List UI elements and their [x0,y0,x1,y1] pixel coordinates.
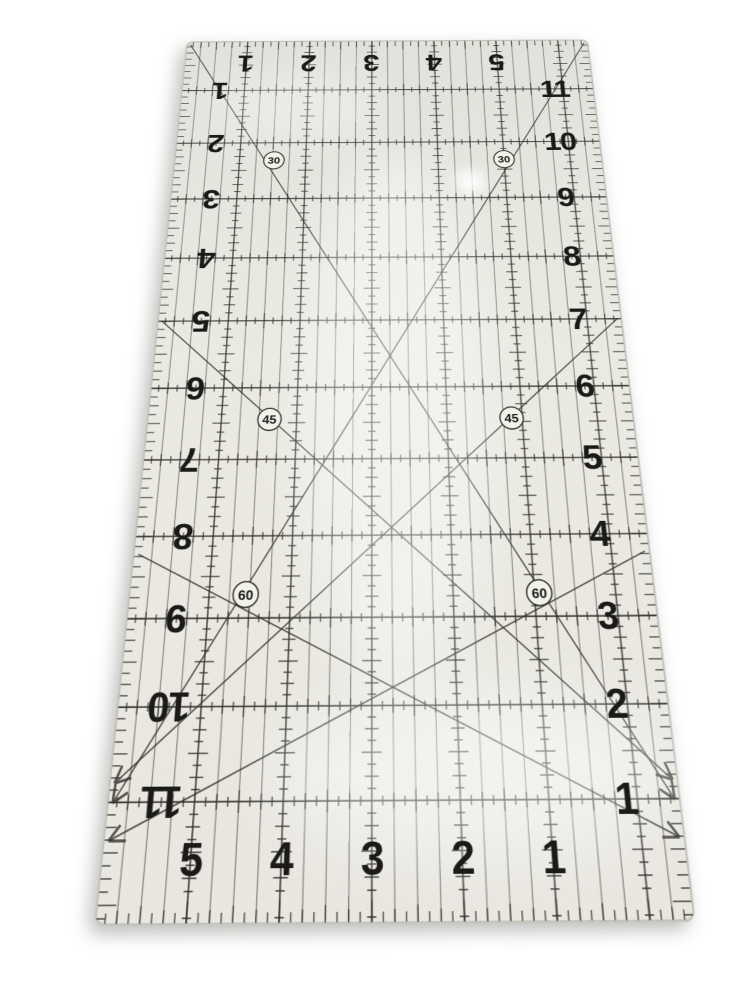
ruler-number: 3 [363,50,379,76]
ruler-number: 4 [425,49,443,75]
svg-text:45: 45 [262,413,277,426]
ruler-number: 10 [543,127,578,155]
ruler-number: 11 [138,776,184,828]
ruler-number: 2 [300,50,317,76]
ruler-number: 4 [269,832,295,886]
svg-text:60: 60 [531,586,547,602]
ruler-shadow: 3030454560601234554321123456789101111109… [0,0,750,1000]
ruler-number: 10 [146,683,192,731]
ruler-number: 11 [539,76,572,103]
photo-scene: 3030454560601234554321123456789101111109… [0,0,750,1000]
svg-text:30: 30 [267,156,280,166]
quilting-ruler: 3030454560601234554321123456789101111109… [93,39,697,927]
ruler-number: 3 [361,832,384,886]
angle-label-30: 30 [493,151,515,168]
angle-label-45: 45 [257,408,281,430]
svg-text:30: 30 [498,154,511,164]
ruler-number: 5 [488,49,506,75]
svg-text:60: 60 [237,587,253,603]
ruler-face: 3030454560601234554321123456789101111109… [93,39,697,927]
angle-label-30: 30 [263,152,284,169]
svg-text:45: 45 [504,412,519,425]
ruler-number: 7 [179,440,201,479]
ruler-number: 7 [567,302,588,336]
ruler-number: 2 [451,831,476,885]
ruler-number: 1 [237,50,255,76]
